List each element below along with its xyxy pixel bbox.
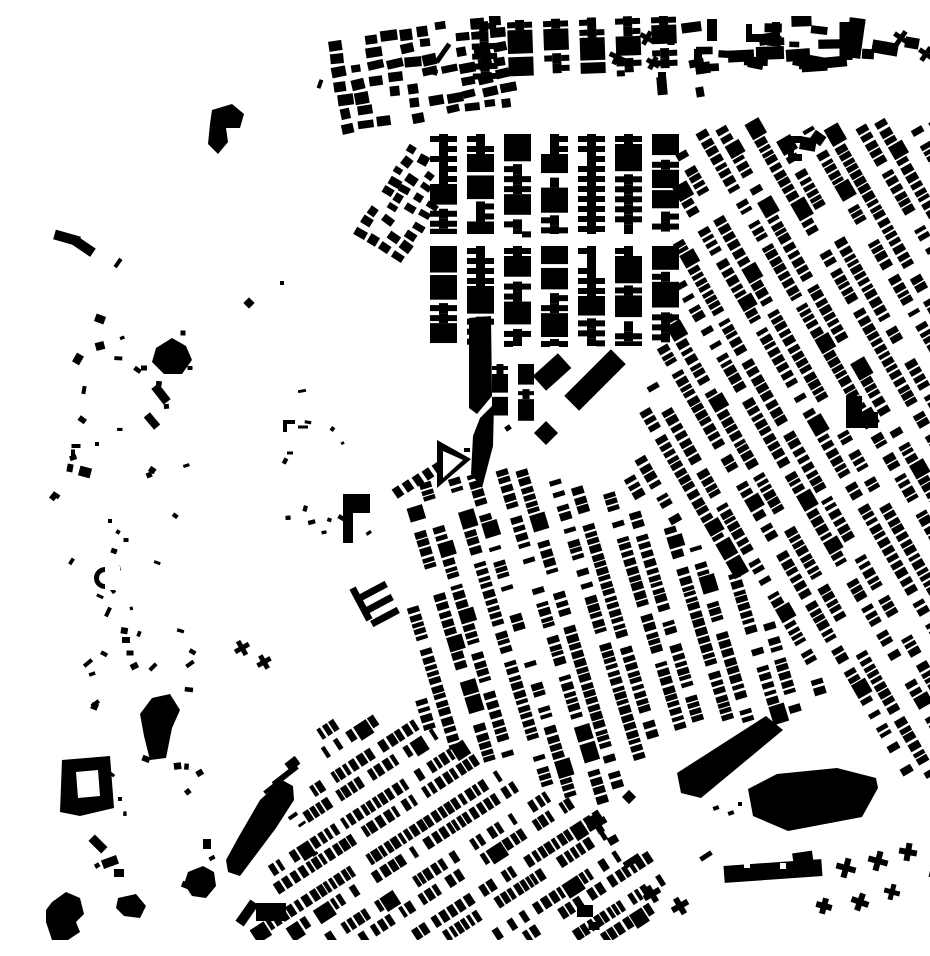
district-north-band-east <box>681 16 847 75</box>
district-north-grid <box>430 134 679 347</box>
district-park-scatter-east <box>282 420 372 536</box>
district-park-scatter-mid <box>49 335 190 637</box>
district-north-grid-ext <box>492 364 534 421</box>
city-figure-ground-map <box>40 16 930 940</box>
figure-ground-map-canvas <box>40 16 930 940</box>
district-central-grid <box>407 468 827 805</box>
rowhouse-chains <box>392 461 445 499</box>
